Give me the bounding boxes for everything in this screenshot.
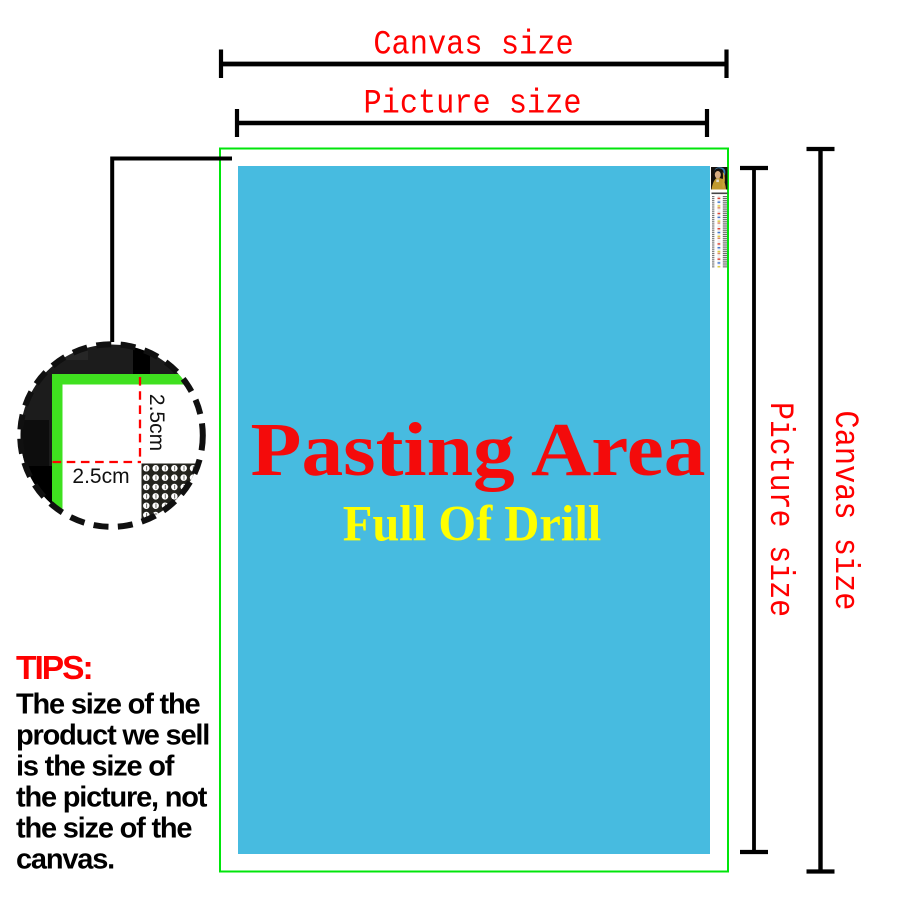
svg-text:is the size of: is the size of [16,751,175,783]
svg-text:Picture size: Picture size [363,84,581,123]
svg-text:the picture, not: the picture, not [16,782,208,814]
svg-text:2.5cm: 2.5cm [72,465,129,488]
svg-text:the size of the: the size of the [16,813,192,845]
svg-text:Pasting Area: Pasting Area [250,408,705,492]
svg-text:product we sell: product we sell [16,720,209,752]
svg-text:The size of the: The size of the [16,689,200,721]
svg-text:Full Of Drill: Full Of Drill [343,496,602,552]
svg-text:canvas.: canvas. [16,844,114,876]
svg-text:Picture size: Picture size [760,402,800,617]
svg-text:Canvas size: Canvas size [825,411,864,611]
svg-text:2.5cm: 2.5cm [145,394,168,451]
svg-text:Canvas size: Canvas size [373,25,573,64]
svg-text:TIPS:: TIPS: [16,650,92,687]
